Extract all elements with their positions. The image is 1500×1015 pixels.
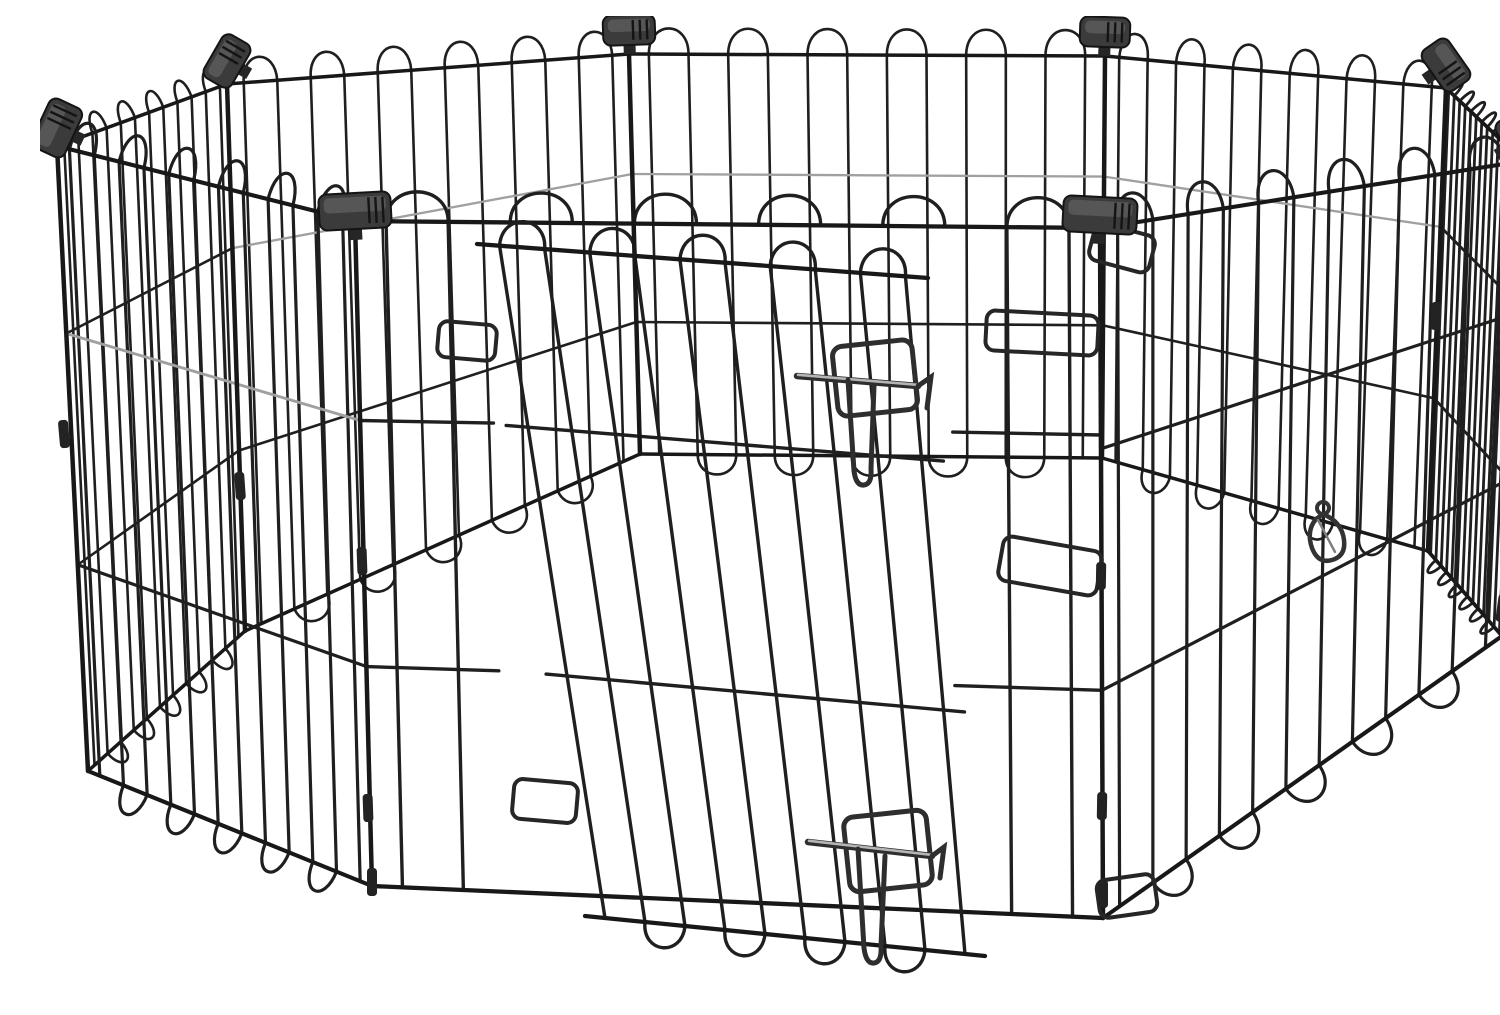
connector-rib — [1128, 204, 1129, 230]
left-corner-panel — [57, 70, 245, 771]
corner-connector — [1079, 16, 1130, 57]
product-photo — [40, 16, 1500, 999]
hinge-clip — [1098, 880, 1108, 908]
latch-hook — [918, 377, 931, 408]
connector-rib — [1121, 203, 1122, 229]
connector-rib — [1122, 23, 1123, 43]
hinge-clip — [58, 420, 70, 449]
connector-rib — [375, 197, 376, 223]
corner-connector — [1062, 195, 1138, 246]
hinge-clip — [1097, 792, 1107, 820]
connector-rib — [382, 197, 383, 223]
door-latch-upper — [797, 339, 931, 485]
hinge-clip — [1096, 562, 1106, 590]
connector-rib — [647, 19, 648, 39]
connector-rib — [640, 20, 641, 40]
connector-rib — [1115, 22, 1116, 42]
hinge-clip — [363, 794, 374, 822]
hinge-clip — [234, 472, 246, 501]
playpen-illustration — [40, 16, 1500, 999]
hinge-clip — [357, 547, 368, 575]
keeper-loop — [985, 310, 1099, 356]
connector-face-highlight — [1085, 20, 1125, 34]
hinge-clip — [1430, 302, 1441, 330]
keeper-loop — [437, 321, 498, 362]
snap-hook — [1310, 502, 1345, 561]
corner-connector — [318, 191, 392, 242]
keeper-loop — [511, 778, 578, 823]
connector-face-highlight — [608, 18, 650, 32]
connector-rib — [1114, 203, 1115, 229]
back-left-panel — [227, 32, 640, 631]
keeper-loop — [997, 535, 1103, 597]
connector-rib — [1108, 22, 1109, 42]
left-front-panel — [57, 123, 372, 891]
connector-rib — [368, 197, 369, 223]
hinge-clip — [367, 868, 377, 896]
connector-rib — [633, 20, 634, 40]
corner-connector — [201, 31, 262, 95]
latch-bolt-highlight — [809, 841, 931, 855]
corner-connector — [1411, 35, 1474, 100]
